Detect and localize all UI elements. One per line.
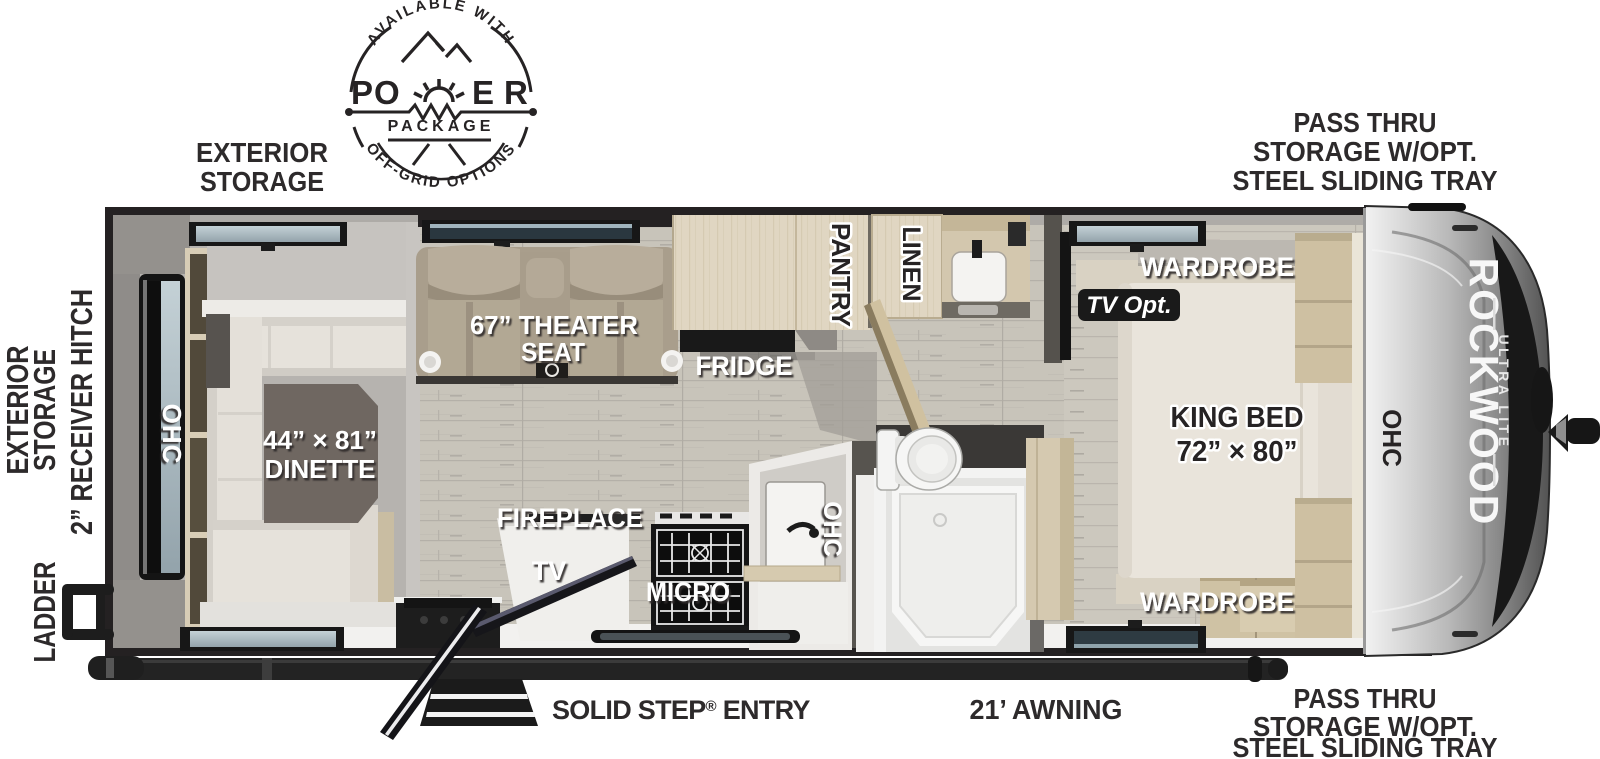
svg-text:72” × 80”: 72” × 80” — [1177, 436, 1298, 468]
svg-text:STORAGE: STORAGE — [200, 166, 324, 197]
svg-text:PACKAGE: PACKAGE — [388, 118, 495, 135]
svg-text:44” × 81”: 44” × 81” — [263, 425, 377, 455]
svg-text:OHC: OHC — [157, 404, 187, 465]
svg-text:E: E — [472, 74, 494, 111]
svg-text:STEEL SLIDING TRAY: STEEL SLIDING TRAY — [1233, 165, 1498, 196]
svg-text:WARDROBE: WARDROBE — [1140, 587, 1294, 617]
svg-text:STORAGE W/OPT.: STORAGE W/OPT. — [1253, 136, 1477, 167]
svg-text:TV: TV — [532, 556, 567, 586]
svg-text:2” RECEIVER HITCH: 2” RECEIVER HITCH — [64, 289, 99, 535]
svg-text:LINEN: LINEN — [897, 227, 925, 302]
svg-text:ULTRA LITE: ULTRA LITE — [1496, 334, 1512, 449]
svg-text:PASS THRU: PASS THRU — [1294, 683, 1437, 714]
svg-text:STEEL SLIDING TRAY: STEEL SLIDING TRAY — [1233, 732, 1498, 759]
svg-text:SOLID STEP® ENTRY: SOLID STEP® ENTRY — [552, 695, 810, 725]
svg-text:P: P — [351, 74, 373, 111]
svg-text:PANTRY: PANTRY — [826, 223, 856, 327]
svg-text:EXTERIOR: EXTERIOR — [196, 137, 328, 168]
svg-text:FRIDGE: FRIDGE — [696, 351, 793, 381]
svg-text:DINETTE: DINETTE — [265, 454, 376, 484]
svg-text:OHC: OHC — [818, 501, 846, 557]
svg-text:PASS THRU: PASS THRU — [1294, 107, 1437, 138]
svg-text:STORAGE: STORAGE — [27, 349, 62, 471]
svg-text:TV Opt.: TV Opt. — [1086, 292, 1171, 319]
svg-text:67” THEATER: 67” THEATER — [470, 310, 638, 340]
svg-text:WARDROBE: WARDROBE — [1140, 252, 1294, 282]
svg-text:21’ AWNING: 21’ AWNING — [970, 694, 1123, 725]
svg-text:R: R — [504, 74, 528, 111]
svg-text:KING BED: KING BED — [1171, 402, 1304, 434]
svg-text:OHC: OHC — [1377, 409, 1407, 467]
svg-text:MICRO: MICRO — [646, 577, 730, 607]
svg-text:LADDER: LADDER — [27, 562, 62, 663]
svg-text:SEAT: SEAT — [521, 337, 585, 367]
svg-text:O: O — [374, 74, 400, 111]
svg-text:FIREPLACE: FIREPLACE — [497, 503, 643, 533]
